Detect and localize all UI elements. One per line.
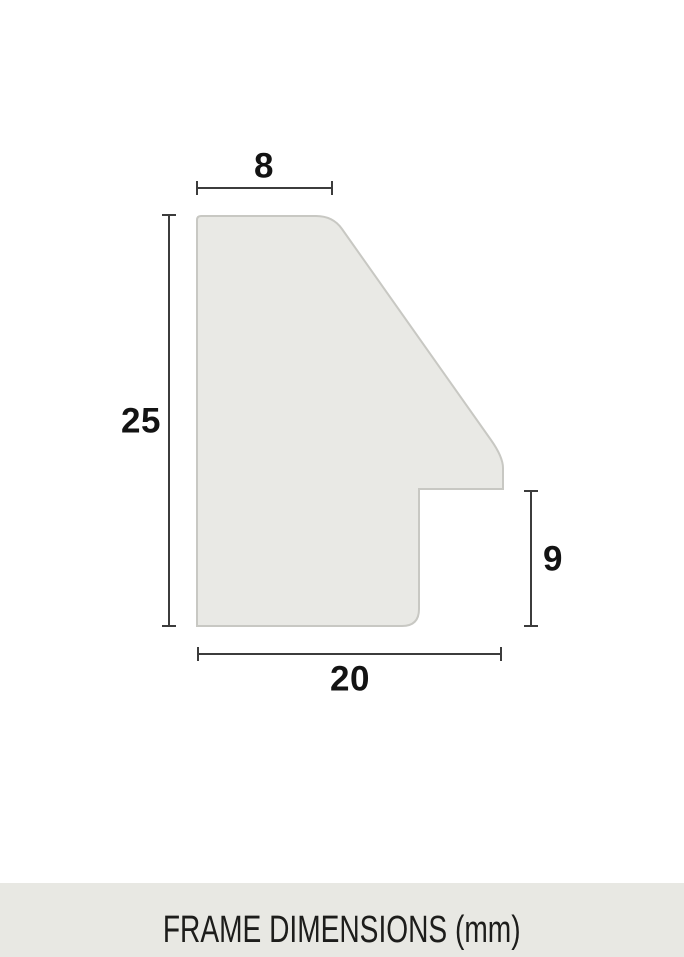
dimension-label-left-height: 25	[121, 404, 161, 439]
dimension-label-top-width: 8	[254, 149, 274, 184]
page: 8 25 9 20 FRAME DIMENSIONS (mm)	[0, 0, 684, 957]
dimension-label-bottom-width: 20	[330, 662, 370, 697]
frame-profile-shape	[197, 216, 503, 626]
frame-profile-diagram: 8 25 9 20	[0, 0, 684, 883]
dimension-line-right-height	[524, 491, 538, 626]
dimension-line-left-height	[162, 215, 176, 626]
footer-bar: FRAME DIMENSIONS (mm)	[0, 883, 684, 957]
footer-title: FRAME DIMENSIONS (mm)	[163, 911, 521, 949]
dimension-label-right-height: 9	[543, 542, 563, 577]
